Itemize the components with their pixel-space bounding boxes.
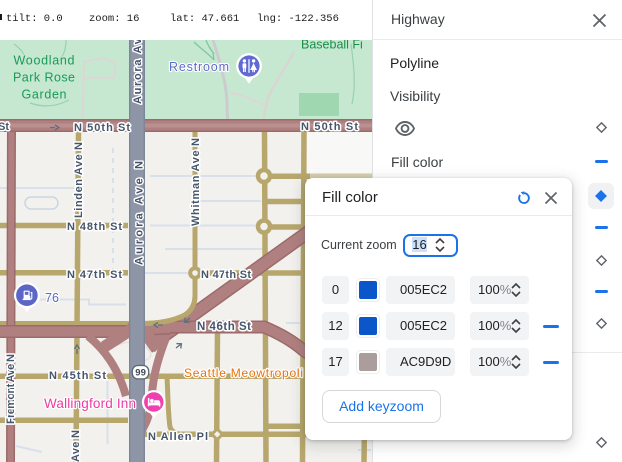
svg-text:Ave N: Ave N [70, 430, 82, 462]
svg-text:N 46th St: N 46th St [197, 321, 251, 333]
svg-text:N 50th St: N 50th St [74, 122, 130, 134]
svg-text:N 47th St: N 47th St [67, 269, 122, 281]
svg-text:Whitman Ave N: Whitman Ave N [190, 138, 202, 226]
svg-text:N 50th St: N 50th St [301, 121, 358, 133]
svg-text:Seattle Meowtropoli: Seattle Meowtropoli [184, 366, 303, 380]
svg-text:Linden Ave N: Linden Ave N [73, 142, 85, 218]
svg-text:Wallingford Inn: Wallingford Inn [44, 396, 136, 411]
svg-text:99: 99 [135, 368, 146, 379]
svg-text:N 45th St: N 45th St [49, 370, 106, 382]
svg-text:Woodland: Woodland [14, 54, 75, 68]
svg-text:N 47th St: N 47th St [201, 269, 251, 281]
svg-text:Fremont Ave N: Fremont Ave N [5, 354, 17, 424]
svg-text:76: 76 [45, 291, 59, 305]
svg-text:N 48th St: N 48th St [67, 221, 122, 233]
svg-text:N Allen Pl: N Allen Pl [148, 431, 208, 443]
svg-text:Restroom: Restroom [169, 60, 229, 74]
svg-text:Park Rose: Park Rose [13, 71, 75, 85]
svg-text:Garden: Garden [22, 88, 67, 102]
svg-text:St: St [0, 121, 9, 133]
